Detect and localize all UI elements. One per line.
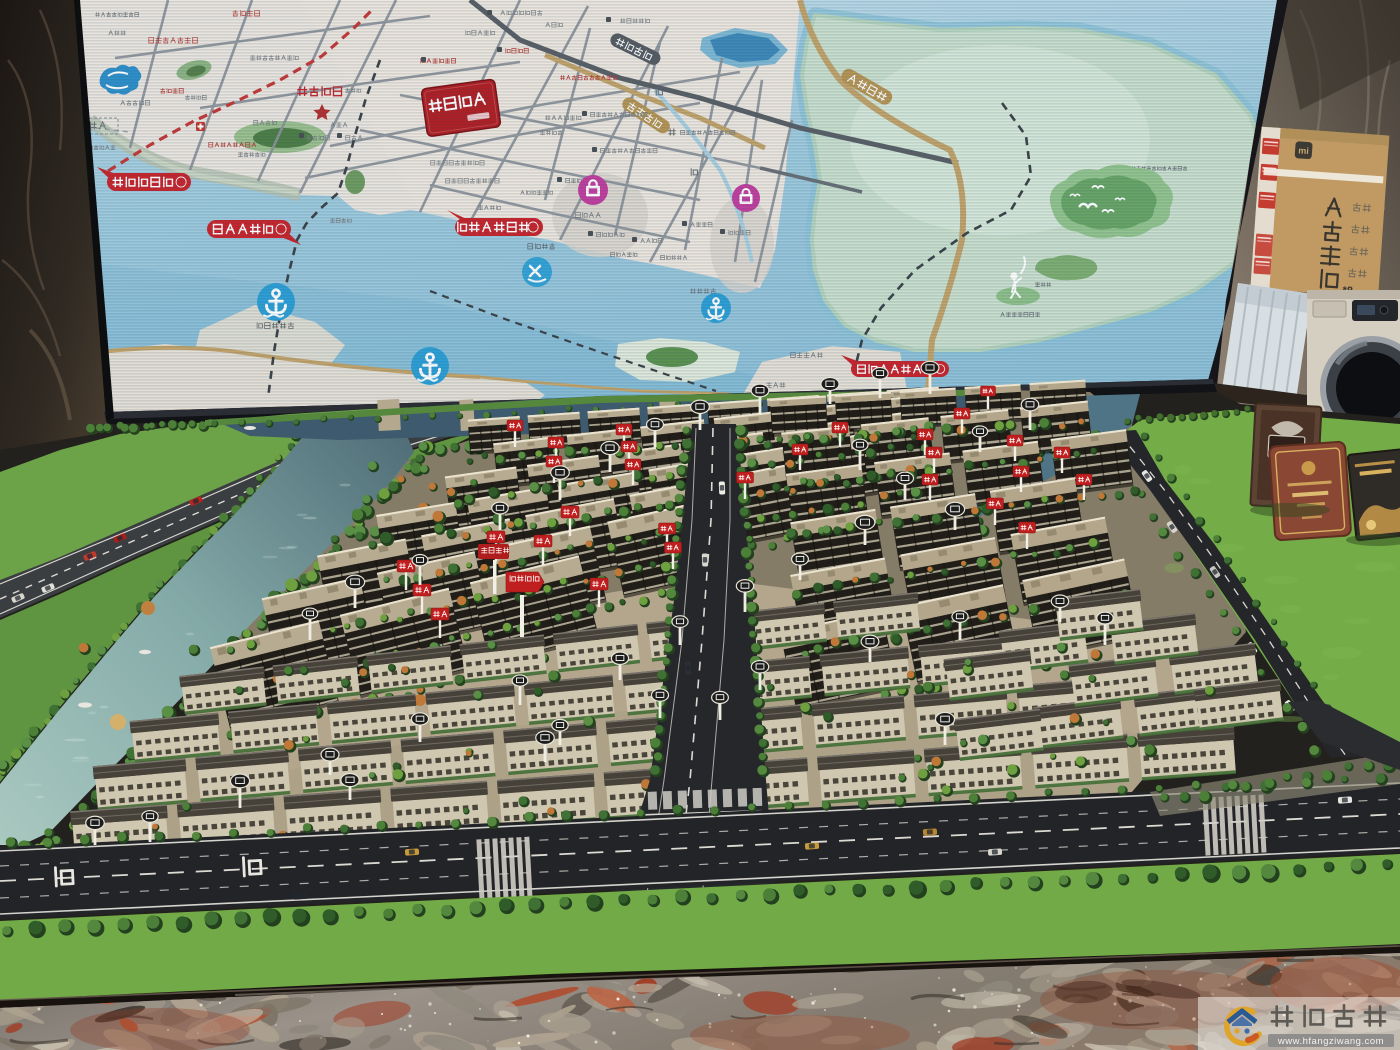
svg-text:mi: mi	[1298, 145, 1309, 156]
